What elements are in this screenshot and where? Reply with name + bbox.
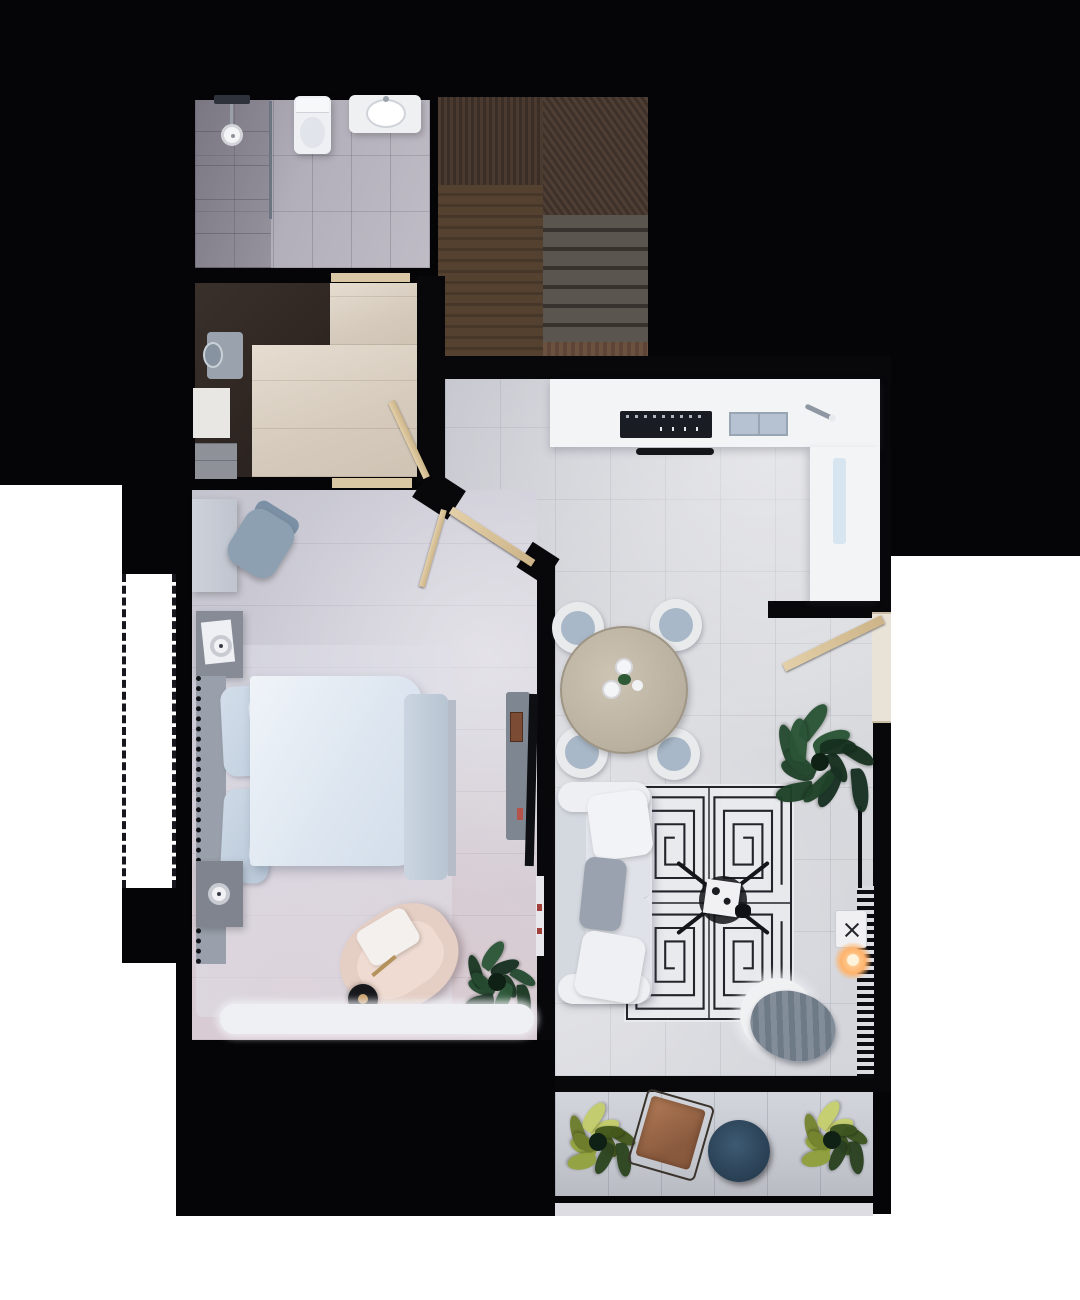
sofa-pillow-white-1 bbox=[586, 788, 655, 862]
closet-drawers bbox=[195, 443, 237, 479]
oven-handle bbox=[636, 448, 714, 455]
shower-ceiling-mount bbox=[214, 95, 250, 104]
staircase bbox=[438, 97, 648, 358]
stairs-diagonal-wood bbox=[543, 97, 648, 215]
console-decor bbox=[510, 712, 523, 742]
bed-duvet bbox=[250, 676, 422, 866]
tray-cup-1 bbox=[711, 887, 720, 896]
wall-under-stairs bbox=[431, 356, 891, 379]
wall-hallway-right bbox=[417, 276, 445, 482]
bed-frame-edge bbox=[448, 700, 456, 876]
kitchen-counter-top bbox=[550, 379, 880, 447]
table-lamp-top bbox=[210, 635, 232, 657]
console-red-item bbox=[517, 808, 523, 820]
sink-faucet bbox=[383, 96, 389, 102]
dining-table bbox=[560, 626, 688, 754]
plate-2 bbox=[602, 680, 621, 699]
table-vase-greenery bbox=[618, 674, 631, 685]
plant-leaf bbox=[787, 718, 809, 762]
toilet-tank bbox=[296, 98, 329, 113]
wall-block-bottom-left bbox=[176, 1040, 555, 1216]
floor-plan-stage bbox=[0, 0, 1080, 1300]
drawer-line bbox=[195, 460, 237, 461]
exterior-light-right bbox=[891, 556, 1080, 1300]
sink-basin bbox=[366, 99, 406, 128]
wall-living-bottom bbox=[555, 1076, 873, 1092]
hallway-floor-upper bbox=[330, 283, 417, 345]
shower-head bbox=[221, 124, 243, 146]
plant-leaf bbox=[850, 768, 870, 813]
washer-door bbox=[203, 342, 223, 368]
cooktop bbox=[620, 411, 712, 438]
coffee-table-item bbox=[735, 904, 751, 918]
kitchen-splashback bbox=[833, 458, 846, 544]
plant-center bbox=[811, 753, 829, 771]
shower-head-center bbox=[231, 134, 235, 138]
washing-machine bbox=[207, 332, 243, 379]
toilet bbox=[294, 96, 331, 154]
plant-center bbox=[589, 1133, 607, 1151]
shower-glass-panel bbox=[269, 101, 272, 219]
plant-leaf bbox=[801, 1149, 832, 1169]
chair-cushion bbox=[657, 737, 691, 771]
stairs-lower-landing bbox=[438, 185, 543, 358]
art-red-mark-1 bbox=[537, 904, 542, 911]
lamp-finial-2 bbox=[217, 892, 221, 896]
balcony-ledge bbox=[553, 1203, 873, 1216]
fur-rug bbox=[220, 1004, 534, 1034]
floor-lamp-shade bbox=[358, 994, 368, 1004]
bathroom-threshold bbox=[331, 273, 410, 282]
coffee-table bbox=[655, 840, 791, 960]
exterior-light-left-lower bbox=[0, 963, 176, 1300]
stairs-upper-landing bbox=[438, 97, 543, 185]
toilet-bowl bbox=[300, 117, 325, 148]
plant-center bbox=[488, 973, 506, 991]
plant-balcony-right bbox=[792, 1094, 872, 1186]
sofa-pillow-gray bbox=[578, 856, 627, 932]
cooktop-controls bbox=[626, 415, 706, 418]
sofa-pillow-white-2 bbox=[573, 929, 647, 1005]
sink-divider bbox=[758, 414, 760, 434]
plant-center bbox=[823, 1131, 841, 1149]
sofa bbox=[556, 782, 654, 1004]
accent-lamp-core bbox=[847, 954, 859, 966]
plant-living bbox=[752, 694, 888, 830]
balcony-table bbox=[708, 1120, 770, 1182]
closet-cabinet bbox=[193, 388, 230, 438]
chair-cushion bbox=[659, 608, 693, 642]
stairs-treads bbox=[543, 215, 648, 342]
bed-foot-blanket bbox=[404, 694, 448, 880]
bedroom-window bbox=[122, 574, 176, 888]
plate-3 bbox=[632, 680, 643, 691]
plant-leaf bbox=[566, 1152, 598, 1172]
tray-cup-2 bbox=[723, 897, 731, 905]
bedroom-threshold bbox=[332, 478, 412, 488]
plant-balcony-left bbox=[558, 1096, 638, 1188]
sink-unit bbox=[349, 95, 421, 133]
table-lamp-bottom bbox=[208, 883, 230, 905]
kitchen-sink bbox=[729, 412, 788, 436]
plant-leaf bbox=[849, 1141, 866, 1175]
cooktop-knobs bbox=[660, 427, 704, 431]
lamp-finial bbox=[219, 644, 223, 648]
